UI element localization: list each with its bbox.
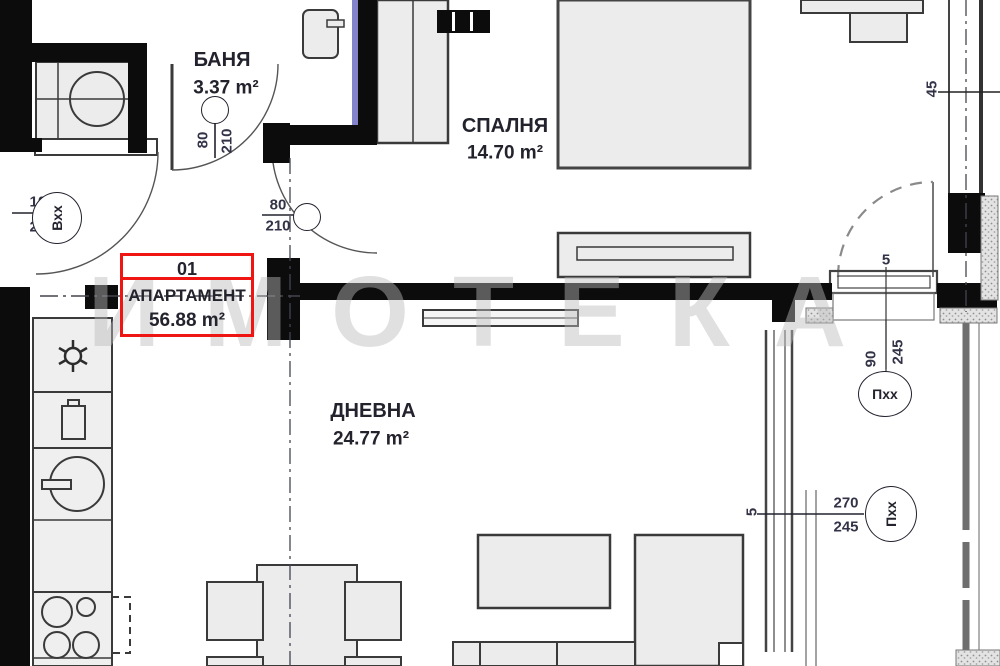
balcony-door-height: 245 [891, 339, 906, 364]
hall-door-arc [272, 148, 377, 253]
entrance-door-tag: Вхх [32, 192, 82, 244]
living-window-width: 270 [833, 496, 858, 511]
coffee-table [478, 535, 610, 608]
hall-door-height: 210 [265, 219, 290, 234]
toilet [303, 10, 338, 58]
living-window-tag: Пхх [865, 486, 917, 542]
nightstand [801, 0, 923, 13]
living-area: 24.77 m² [333, 430, 409, 449]
chair [345, 582, 401, 640]
dining-set [207, 565, 401, 666]
living-name: ДНЕВНА [330, 401, 415, 421]
bathroom-area: 3.37 m² [193, 79, 258, 98]
bathroom-name: БАНЯ [194, 50, 251, 70]
balcony-door-width: 90 [864, 351, 879, 368]
washing-machine [36, 62, 132, 140]
sill-dim-side: 5 [745, 508, 760, 516]
apartment-label-box: 01 АПАРТАМЕНТ 56.88 m² [120, 253, 254, 337]
blue-accent-line [352, 0, 358, 125]
bathroom-door-width: 80 [196, 132, 211, 149]
windows [766, 0, 981, 666]
chair [207, 657, 263, 666]
kitchen-units [33, 318, 130, 666]
door-swings [35, 64, 933, 277]
bathroom-door-tag-circle [201, 96, 229, 124]
toilet-flush-handle [327, 20, 344, 27]
floor-plan: ИМОТЕКА БАНЯ 3.37 m² СПАЛНЯ 14.70 m² ДНЕ… [0, 0, 1000, 666]
apartment-type: АПАРТАМЕНТ [128, 286, 245, 306]
chair [345, 657, 401, 666]
sill-dim-top: 5 [882, 253, 890, 268]
balcony-door-tag: Пхх [858, 371, 912, 417]
living-room-window [766, 330, 792, 652]
hall-door-width: 80 [270, 198, 287, 213]
bedroom-area: 14.70 m² [467, 144, 543, 163]
wall-thickness-dim: 45 [925, 81, 940, 98]
bedroom-balcony-window [830, 271, 937, 293]
dresser [558, 233, 750, 277]
apartment-number: 01 [177, 259, 197, 280]
dashed-appliance [112, 597, 130, 653]
bed [558, 0, 750, 168]
bedroom-name: СПАЛНЯ [462, 116, 548, 136]
dining-table [257, 565, 357, 666]
bathroom-door-height: 210 [220, 128, 235, 153]
chair [207, 582, 263, 640]
apartment-area: 56.88 m² [149, 310, 225, 332]
hall-door-tag-circle [293, 203, 321, 231]
living-window-height: 245 [833, 520, 858, 535]
